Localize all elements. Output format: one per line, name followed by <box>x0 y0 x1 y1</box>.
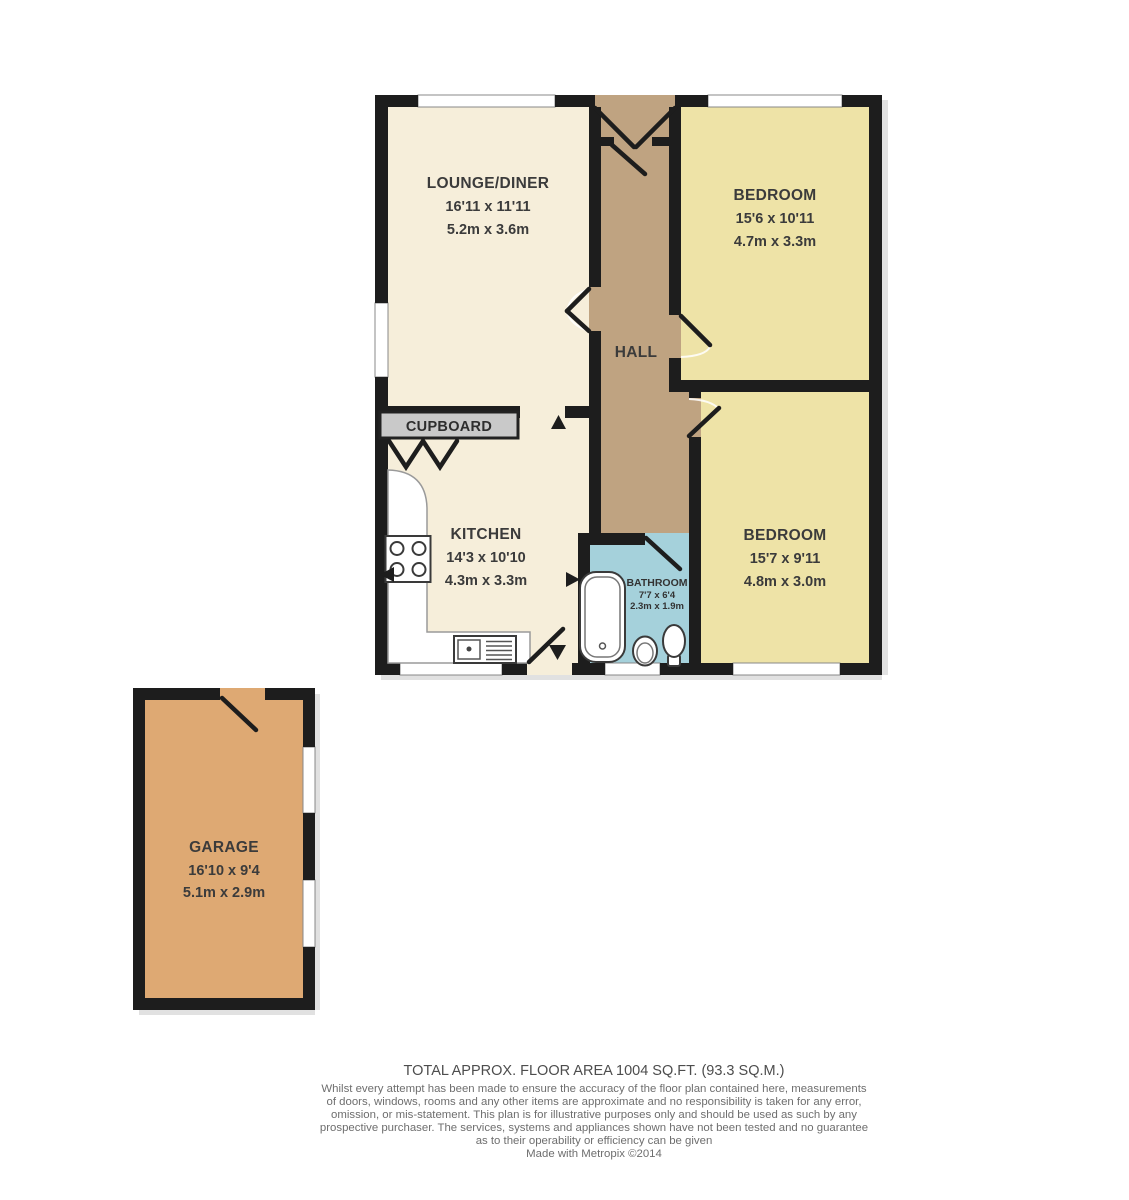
kitchen-metric-label: 4.3m x 3.3m <box>445 573 527 589</box>
disclaimer-line-5: as to their operability or efficiency ca… <box>476 1135 713 1147</box>
credit-label: Made with Metropix ©2014 <box>526 1148 662 1160</box>
bedroom2-imperial-label: 15'7 x 9'11 <box>750 551 821 567</box>
bathroom-name-label: BATHROOM <box>626 577 687 589</box>
window-bedroom1-top <box>708 95 842 107</box>
bedroom1-metric-label: 4.7m x 3.3m <box>734 234 816 250</box>
bathroom-metric-label: 2.3m x 1.9m <box>630 601 684 612</box>
window-lounge-left <box>375 303 388 377</box>
kitchen-sink <box>454 636 516 663</box>
garage-name-label: GARAGE <box>189 839 259 856</box>
hall-name-label: HALL <box>615 344 658 361</box>
disclaimer-line-3: omission, or mis-statement. This plan is… <box>331 1109 857 1121</box>
disclaimer-line-1: Whilst every attempt has been made to en… <box>321 1083 866 1095</box>
bedroom1-name-label: BEDROOM <box>733 187 816 204</box>
window-bathroom-bottom <box>605 663 660 675</box>
disclaimer-line-2: of doors, windows, rooms and any other i… <box>327 1096 862 1108</box>
floorplan-svg: LOUNGE/DINER 16'11 x 11'11 5.2m x 3.6m B… <box>0 0 1129 1200</box>
bedroom2-name-label: BEDROOM <box>743 527 826 544</box>
lounge-imperial-label: 16'11 x 11'11 <box>445 199 530 215</box>
garage-imperial-label: 16'10 x 9'4 <box>188 863 259 879</box>
window-bedroom2-bottom <box>733 663 840 675</box>
kitchen-imperial-label: 14'3 x 10'10 <box>446 550 525 566</box>
toilet <box>633 637 657 666</box>
disclaimer-line-4: prospective purchaser. The services, sys… <box>320 1122 868 1134</box>
kitchen-door-gap <box>527 663 572 675</box>
floorplan-page: LOUNGE/DINER 16'11 x 11'11 5.2m x 3.6m B… <box>0 0 1129 1200</box>
bathroom-imperial-label: 7'7 x 6'4 <box>639 590 676 601</box>
lounge-metric-label: 5.2m x 3.6m <box>447 222 529 238</box>
lounge-name-label: LOUNGE/DINER <box>427 175 549 192</box>
total-area-label: TOTAL APPROX. FLOOR AREA 1004 SQ.FT. (93… <box>404 1063 785 1079</box>
window-garage-right-1 <box>303 747 315 813</box>
bathtub <box>580 572 625 662</box>
window-lounge-top <box>418 95 555 107</box>
kitchen-name-label: KITCHEN <box>451 526 522 543</box>
cupboard-name-label: CUPBOARD <box>406 419 492 435</box>
garage-metric-label: 5.1m x 2.9m <box>183 885 265 901</box>
window-garage-right-2 <box>303 880 315 947</box>
bedroom1-imperial-label: 15'6 x 10'11 <box>736 211 815 227</box>
garage-door-gap <box>220 688 265 700</box>
window-kitchen-bottom <box>400 663 502 675</box>
footer: TOTAL APPROX. FLOOR AREA 1004 SQ.FT. (93… <box>320 1063 868 1160</box>
bedroom2-metric-label: 4.8m x 3.0m <box>744 574 826 590</box>
